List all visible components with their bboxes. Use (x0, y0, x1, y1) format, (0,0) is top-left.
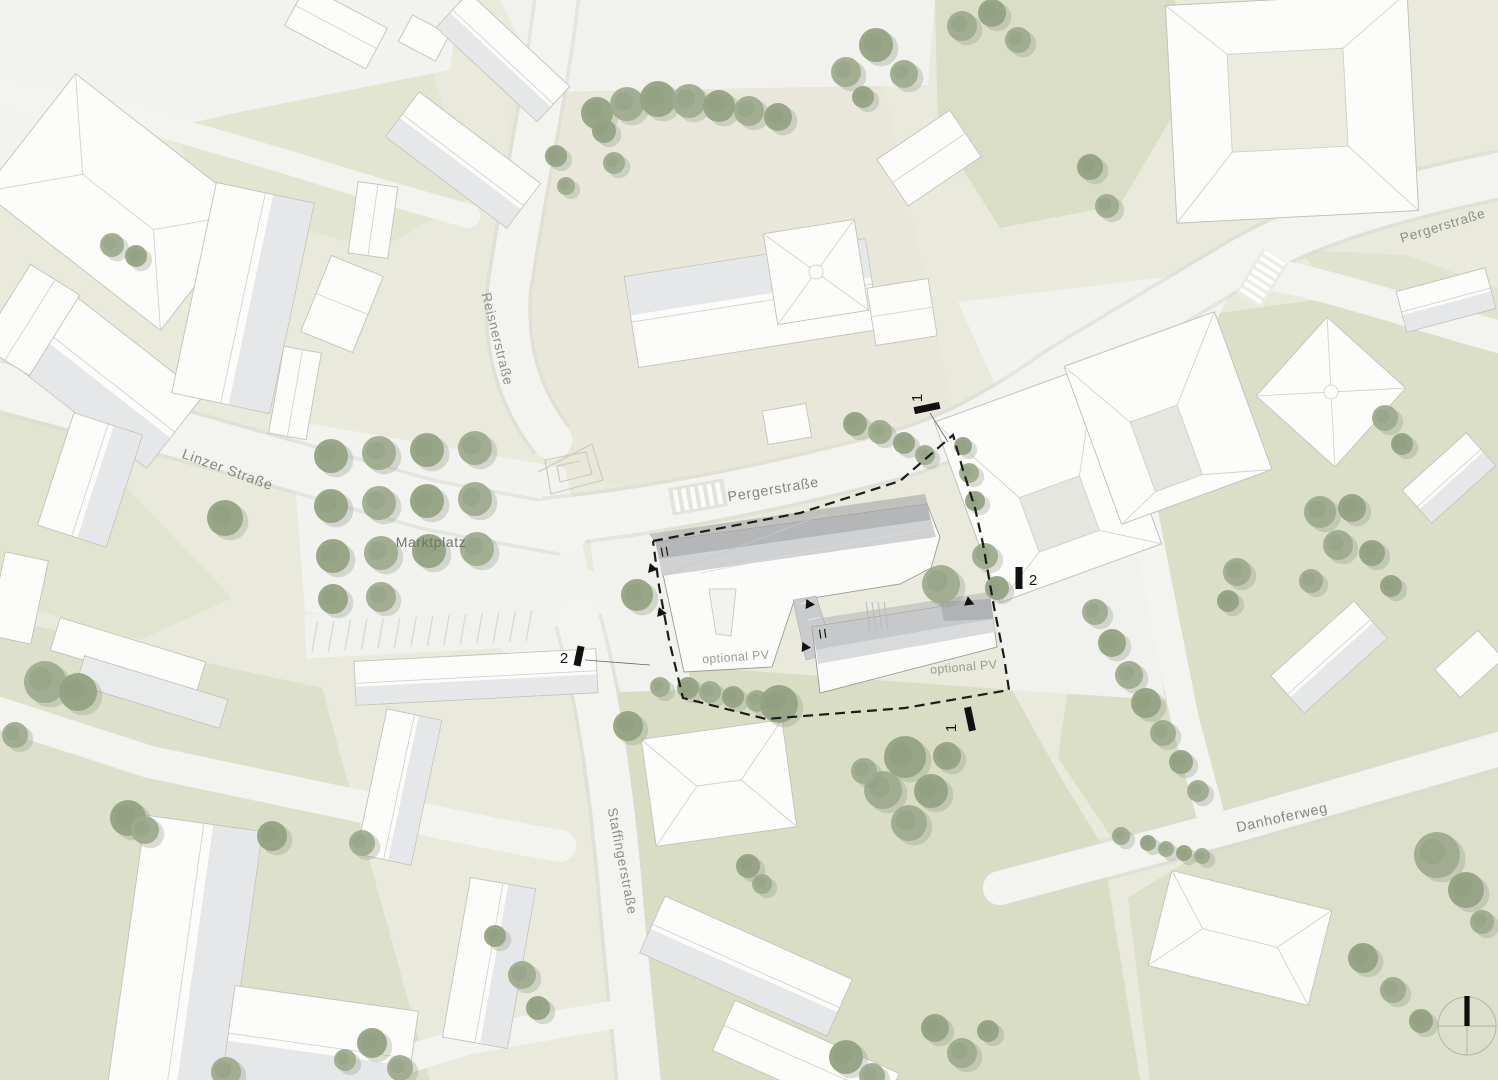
tree-crown-texture (676, 89, 695, 108)
site-plan-svg: Reisnerstraße Linzer Straße Marktplatz P… (0, 0, 1498, 1080)
tree-crown-texture (261, 826, 278, 843)
tree-crown-texture (318, 444, 337, 463)
tree-crown-texture (680, 680, 692, 692)
tree-crown-texture (5, 726, 19, 740)
building-courtyard-ne (1165, 0, 1418, 223)
tree-crown-texture (765, 691, 786, 712)
tree-crown-texture (835, 62, 852, 79)
tree-crown-texture (1220, 593, 1232, 605)
tree-crown-texture (462, 436, 481, 455)
tree-crown-texture (64, 679, 85, 700)
tree-crown-texture (370, 587, 387, 604)
tree-crown-texture (617, 716, 634, 733)
building (867, 279, 937, 346)
building (763, 219, 868, 324)
tree-crown-texture (1196, 850, 1205, 859)
tree-crown-texture (645, 86, 665, 106)
tree-crown-texture (1085, 603, 1099, 617)
tree-crown-texture (889, 742, 912, 765)
tree-crown-texture (1473, 914, 1486, 927)
tree-crown-texture (951, 16, 968, 33)
tree-crown-texture (1383, 981, 1397, 995)
tree-crown-texture (702, 684, 714, 696)
tree-crown-texture (215, 1062, 232, 1079)
section-label-2-right: 2 (1029, 572, 1037, 589)
tree-crown-texture (937, 746, 952, 761)
tree-crown-texture (738, 101, 755, 118)
tree-crown-texture (918, 779, 937, 798)
tree-crown-texture (1308, 501, 1326, 519)
tree-crown-texture (464, 537, 483, 556)
tree-crown-texture (739, 858, 752, 871)
tree-crown-texture (982, 3, 997, 18)
tree-crown-texture (128, 248, 140, 260)
tree-crown-texture (896, 435, 908, 447)
tree-crown-texture (951, 1043, 968, 1060)
tree-crown-texture (414, 489, 433, 508)
building (301, 255, 384, 352)
tree-crown-texture (833, 1045, 852, 1064)
tree-crown-texture (322, 589, 339, 606)
level-marker-east: II (817, 625, 829, 641)
section-label-2-left: 2 (560, 650, 568, 667)
tree-crown-texture (1153, 724, 1167, 738)
tree-crown-texture (366, 491, 385, 510)
tree-crown-texture (1327, 535, 1344, 552)
section-label-1-top: 1 (909, 394, 926, 402)
site-plan-page: Reisnerstraße Linzer Straße Marktplatz P… (0, 0, 1498, 1080)
tree-crown-texture (927, 571, 948, 592)
tree-crown-texture (1394, 436, 1406, 448)
tree-crown-texture (749, 693, 761, 705)
tree-crown-texture (653, 680, 664, 691)
tree-crown-texture (1172, 754, 1185, 767)
tree-crown-texture (975, 547, 989, 561)
tree-crown-texture (103, 237, 116, 250)
building-footprint (762, 403, 811, 444)
tree-crown-texture (352, 834, 366, 848)
tree-crown-texture (320, 544, 339, 563)
tree-crown-texture (1119, 665, 1134, 680)
tree-crown-texture (725, 689, 737, 701)
tree-crown-texture (595, 123, 608, 136)
tree-crown-texture (1362, 544, 1376, 558)
tree-crown-texture (606, 155, 618, 167)
tree-crown-texture (366, 441, 385, 460)
tree-crown-texture (529, 1000, 542, 1013)
tree-crown-texture (1453, 877, 1473, 897)
tree-crown-texture (361, 1033, 378, 1050)
tree-crown-texture (1383, 578, 1395, 590)
tree-crown-texture (1375, 409, 1389, 423)
tree-crown-texture (548, 148, 560, 160)
tree-crown-texture (1098, 198, 1111, 211)
tree-crown-texture (390, 1059, 404, 1073)
tree-crown-texture (1080, 158, 1094, 172)
tree-crown-texture (414, 438, 433, 457)
tree-crown-texture (559, 180, 569, 190)
tree-crown-texture (487, 928, 499, 940)
compass-north-arrow-icon (1438, 996, 1496, 1055)
tree-crown-texture (707, 95, 725, 113)
tree-crown-texture (768, 107, 783, 122)
building (762, 403, 811, 444)
tree-crown-texture (512, 965, 527, 980)
tree-crown-texture (980, 1023, 992, 1035)
tree-crown-texture (1190, 783, 1202, 795)
tree-crown-texture (318, 494, 337, 513)
tree-crown-texture (1135, 693, 1152, 710)
tree-crown-texture (625, 584, 643, 602)
tree-crown-texture (1412, 1013, 1425, 1026)
tree-crown-texture (614, 92, 633, 111)
tree-crown-texture (755, 877, 766, 888)
tree-crown-texture (854, 762, 868, 776)
tree-crown-texture (1142, 837, 1151, 846)
building (641, 720, 797, 847)
section-bar-2-right (1016, 567, 1023, 589)
tree-crown-texture (462, 487, 481, 506)
tree-crown-texture (871, 424, 884, 437)
tree-crown-texture (855, 89, 867, 101)
tree-crown-texture (29, 667, 52, 690)
tree-crown-texture (337, 1052, 349, 1064)
tree-crown-texture (1178, 847, 1187, 856)
tree-crown-texture (846, 416, 859, 429)
tree-crown-texture (896, 810, 916, 830)
courtyard (1227, 48, 1348, 152)
tree-crown-texture (1352, 948, 1369, 965)
tree-crown-texture (925, 1018, 940, 1033)
tree-crown-texture (1227, 562, 1242, 577)
tree-crown-texture (894, 64, 909, 79)
tree-crown-texture (115, 805, 135, 825)
tree-crown-texture (212, 505, 232, 525)
tree-crown-texture (863, 33, 882, 52)
tree-crown-texture (135, 820, 150, 835)
tree-crown-texture (1008, 31, 1022, 45)
place-label-marktplatz: Marktplatz (396, 534, 467, 550)
section-label-1-bottom: 1 (943, 724, 960, 732)
tree-crown-texture (368, 541, 387, 560)
tree-crown-texture (1302, 573, 1315, 586)
tree-crown-texture (1114, 830, 1124, 840)
tree-crown-texture (1160, 843, 1169, 852)
tree-crown-texture (1102, 633, 1117, 648)
tree-crown-texture (585, 102, 603, 120)
tree-crown-texture (1420, 839, 1445, 864)
tree-crown-texture (1342, 498, 1357, 513)
